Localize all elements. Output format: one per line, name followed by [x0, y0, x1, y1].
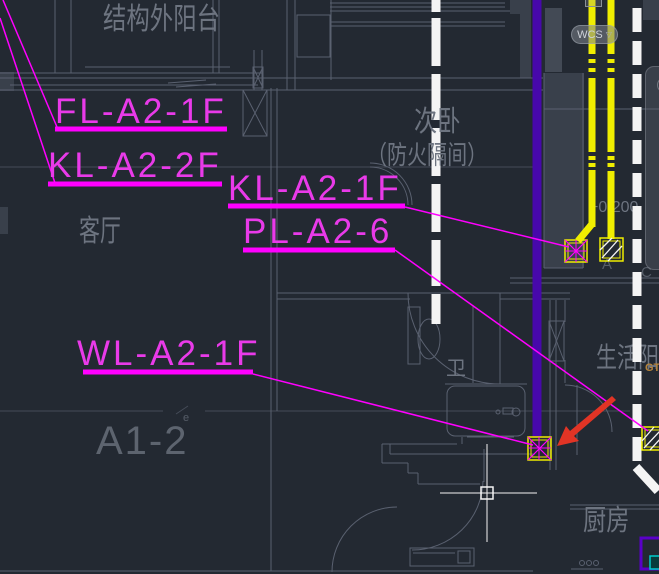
pipe-label-wl[interactable]: WL-A2-1F	[77, 336, 260, 371]
over-text-layer: 结构外阳台 次卧 （防火隔间） 客厅 卫 厨房 A1-2 e FL-A2-1F …	[0, 0, 659, 574]
viewcube-fragment-icon[interactable]	[585, 0, 602, 7]
cad-viewport[interactable]: +0.200 生活阳台 GT A C 结构外阳台 次卧 （防火隔间） 客厅 卫 …	[0, 0, 659, 574]
navigation-bar[interactable]	[645, 66, 659, 270]
triangle-down-icon: ▽	[606, 30, 612, 39]
room-label-kitchen[interactable]: 厨房	[583, 507, 629, 536]
unit-number-text[interactable]: A1-2	[96, 421, 189, 461]
wcs-label: WCS	[577, 29, 603, 41]
room-label-fire-compartment[interactable]: （防火隔间）	[367, 142, 487, 168]
pipe-label-kl1[interactable]: KL-A2-1F	[228, 171, 402, 206]
wcs-dropdown[interactable]: WCS ▽	[571, 25, 618, 44]
unit-sup-text: e	[183, 413, 189, 424]
pipe-label-kl2[interactable]: KL-A2-2F	[48, 148, 222, 183]
pipe-label-fl[interactable]: FL-A2-1F	[55, 94, 227, 129]
room-label-second-bedroom[interactable]: 次卧	[414, 108, 460, 137]
room-label-structural-balcony[interactable]: 结构外阳台	[103, 5, 220, 35]
room-label-living-room[interactable]: 客厅	[79, 217, 121, 247]
pipe-label-pl[interactable]: PL-A2-6	[243, 214, 392, 249]
room-label-bathroom[interactable]: 卫	[446, 359, 466, 379]
